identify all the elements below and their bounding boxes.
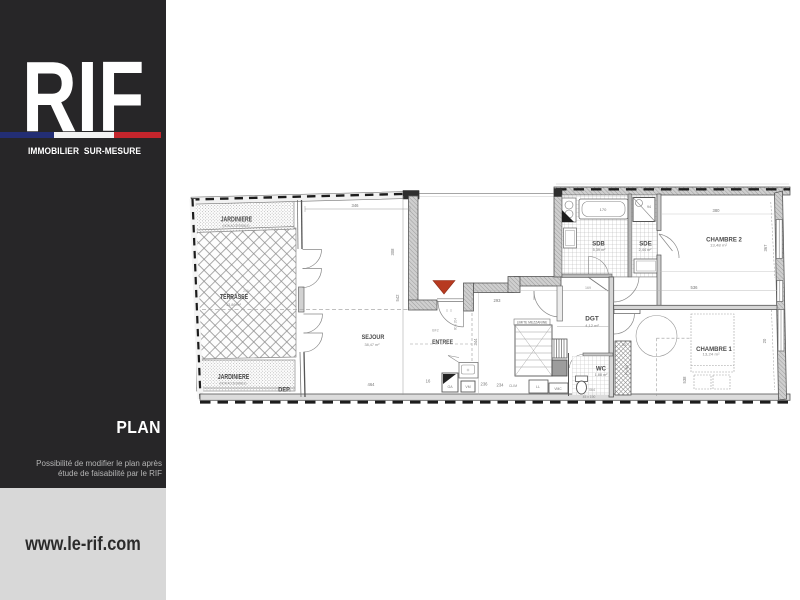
- svg-text:169: 169: [585, 286, 591, 290]
- svg-text:380: 380: [713, 208, 721, 213]
- svg-text:5,39 m²: 5,39 m²: [593, 248, 607, 252]
- svg-text:536: 536: [691, 285, 699, 290]
- svg-text:80: 80: [622, 343, 626, 347]
- svg-text:542: 542: [395, 294, 400, 302]
- svg-text:SDE: SDE: [639, 240, 652, 247]
- svg-text:20: 20: [762, 338, 767, 343]
- svg-text:293: 293: [494, 298, 502, 303]
- svg-text:367: 367: [763, 244, 768, 252]
- svg-text:80 x 204: 80 x 204: [454, 318, 458, 330]
- svg-text:170: 170: [600, 207, 607, 212]
- svg-text:ENTREE: ENTREE: [432, 339, 453, 346]
- svg-text:SEJOUR: SEJOUR: [362, 334, 385, 341]
- svg-text:TERRASSE: TERRASSE: [220, 294, 248, 301]
- svg-text:13,24 m²: 13,24 m²: [703, 353, 721, 357]
- svg-text:45 x 190: 45 x 190: [583, 395, 596, 399]
- svg-text:JARDINIERE: JARDINIERE: [221, 215, 253, 224]
- svg-text:VM: VM: [465, 385, 470, 389]
- svg-text:16: 16: [426, 379, 431, 384]
- svg-text:(NON ACCESSIBLE): (NON ACCESSIBLE): [223, 224, 250, 228]
- svg-text:13,48 m²: 13,48 m²: [710, 243, 728, 247]
- svg-text:38,47 m²: 38,47 m²: [365, 343, 381, 347]
- svg-text:BF2: BF2: [432, 329, 438, 333]
- svg-text:94: 94: [647, 205, 651, 209]
- svg-text:4,12 m²: 4,12 m²: [585, 323, 599, 328]
- svg-text:WC: WC: [596, 365, 606, 372]
- svg-text:064: 064: [589, 388, 595, 392]
- svg-text:LIMITE MEZZANINE: LIMITE MEZZANINE: [517, 321, 548, 325]
- svg-text:13,86 m²: 13,86 m²: [226, 303, 242, 307]
- svg-text:DEP.: DEP.: [278, 388, 291, 394]
- svg-text:CLIM: CLIM: [509, 384, 517, 388]
- svg-text:SDB: SDB: [592, 240, 605, 247]
- svg-text:LL: LL: [536, 385, 540, 389]
- svg-text:PL 80: PL 80: [625, 365, 629, 375]
- svg-text:1,88 m²: 1,88 m²: [595, 373, 609, 377]
- svg-text:308: 308: [390, 248, 395, 256]
- svg-text:VMC: VMC: [554, 387, 562, 391]
- svg-text:2,44 m²: 2,44 m²: [639, 248, 653, 252]
- svg-text:464: 464: [368, 382, 376, 387]
- svg-text:246: 246: [243, 289, 249, 293]
- svg-text:234: 234: [497, 383, 505, 388]
- svg-text:346: 346: [352, 203, 360, 208]
- svg-text:DGT: DGT: [585, 316, 599, 323]
- svg-text:GA: GA: [447, 385, 453, 389]
- svg-text:JARDINIERE: JARDINIERE: [218, 372, 250, 381]
- svg-text:236: 236: [481, 382, 489, 387]
- svg-text:(NON ACCESSIBLE): (NON ACCESSIBLE): [220, 382, 247, 386]
- svg-text:538: 538: [682, 376, 687, 384]
- svg-text:344: 344: [473, 338, 478, 346]
